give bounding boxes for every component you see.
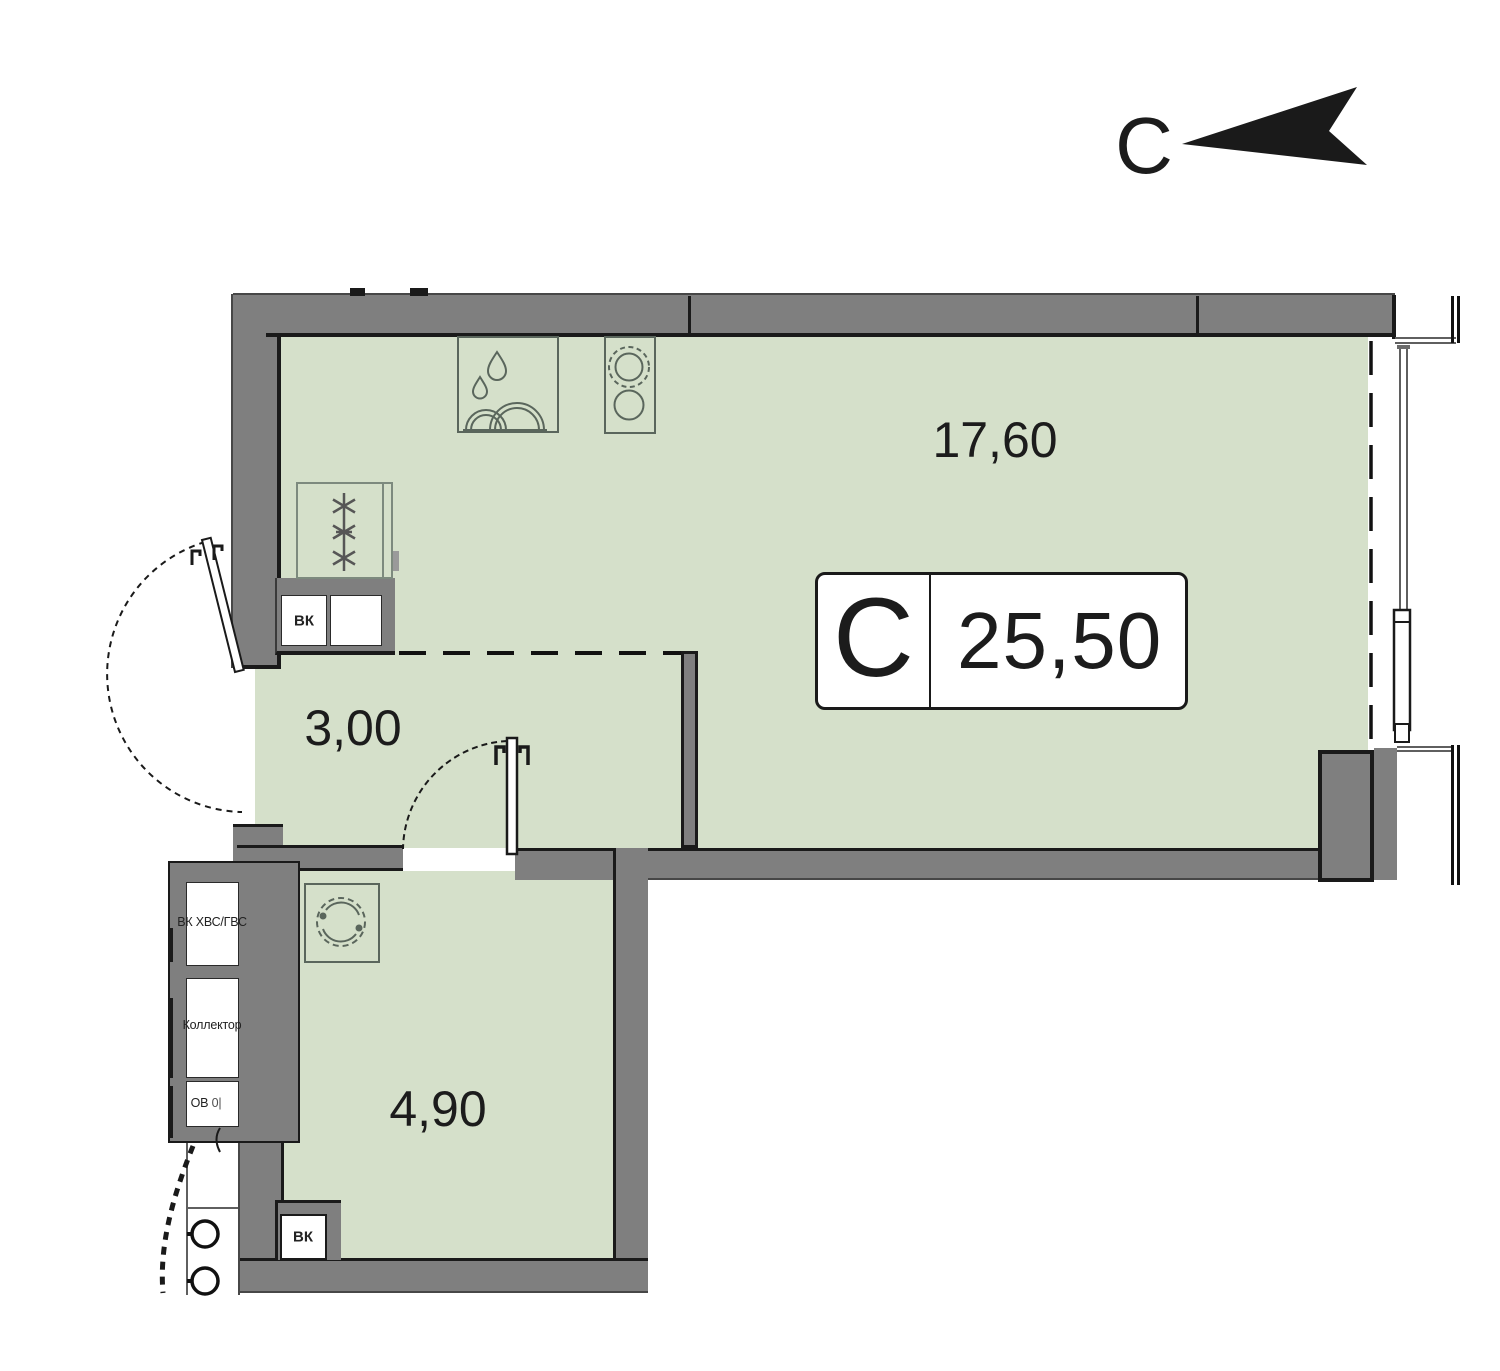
area-label-living: 17,60: [932, 411, 1057, 469]
wall-top: [237, 295, 1395, 337]
edge-neighbor-wall: [238, 1143, 240, 1295]
shaft-label-vk-hvs-gvs: ВК ХВС/ГВС: [177, 915, 247, 929]
wall-bathroom-bottom: [240, 1258, 648, 1293]
wall-partition: [681, 651, 698, 848]
unit-badge: С 25,50: [815, 572, 1188, 710]
wall-bathroom-right: [613, 848, 648, 1293]
entrance-door-swing-arc: [107, 542, 242, 812]
edge-tick-2: [410, 288, 428, 296]
area-label-hallway: 3,00: [304, 699, 401, 757]
kitchen-vent-cell-empty: [330, 595, 382, 646]
wall-left: [233, 295, 281, 668]
unit-area-value: 25,50: [931, 575, 1185, 707]
edge-outer-left: [231, 294, 233, 668]
balcony-door-leaf: [1394, 610, 1410, 730]
edge-bathbottom-outer: [240, 1291, 648, 1293]
entrance-door-hinge: [192, 546, 222, 565]
shaft-label-ov: ОВ 0|: [191, 1096, 222, 1110]
edge-topwall-inner: [266, 333, 1395, 337]
edge-topwall-right-end: [1392, 295, 1396, 339]
kitchen-vent-label: ВК: [294, 613, 314, 630]
unit-type-letter: С: [818, 575, 931, 707]
wall-room-bottom: [648, 848, 1320, 880]
shaft-label-collector: Коллектор: [183, 1018, 242, 1032]
wall-column-br: [1318, 750, 1374, 882]
edge-outer-top: [233, 293, 1395, 295]
entrance-door: [107, 538, 244, 812]
edge-tick-1: [350, 288, 365, 296]
edge-wall-joint-1: [688, 296, 691, 337]
fridge-tick: [393, 551, 399, 571]
shaft-dash-2: [170, 998, 173, 1078]
shaft-dash-3: [170, 1086, 173, 1138]
neighbor-door-swing-arc: [162, 1146, 193, 1293]
balcony-window: [1394, 296, 1460, 885]
area-label-bathroom: 4,90: [389, 1080, 486, 1138]
bath-vent-label: ВК: [293, 1229, 313, 1246]
edge-leftwall-cap: [233, 665, 281, 669]
neighbor-stove: [187, 1143, 238, 1295]
north-arrow-icon: [1182, 87, 1367, 165]
wall-column-side: [1374, 748, 1397, 880]
shaft-dash-1: [170, 928, 173, 962]
north-label: С: [1115, 100, 1173, 192]
floor-plan: ВК ХВС/ГВС Коллектор ОВ 0| ВК ВК: [0, 0, 1500, 1371]
edge-wall-joint-2: [1196, 296, 1199, 337]
edge-bottomwall-outer: [648, 878, 1320, 880]
